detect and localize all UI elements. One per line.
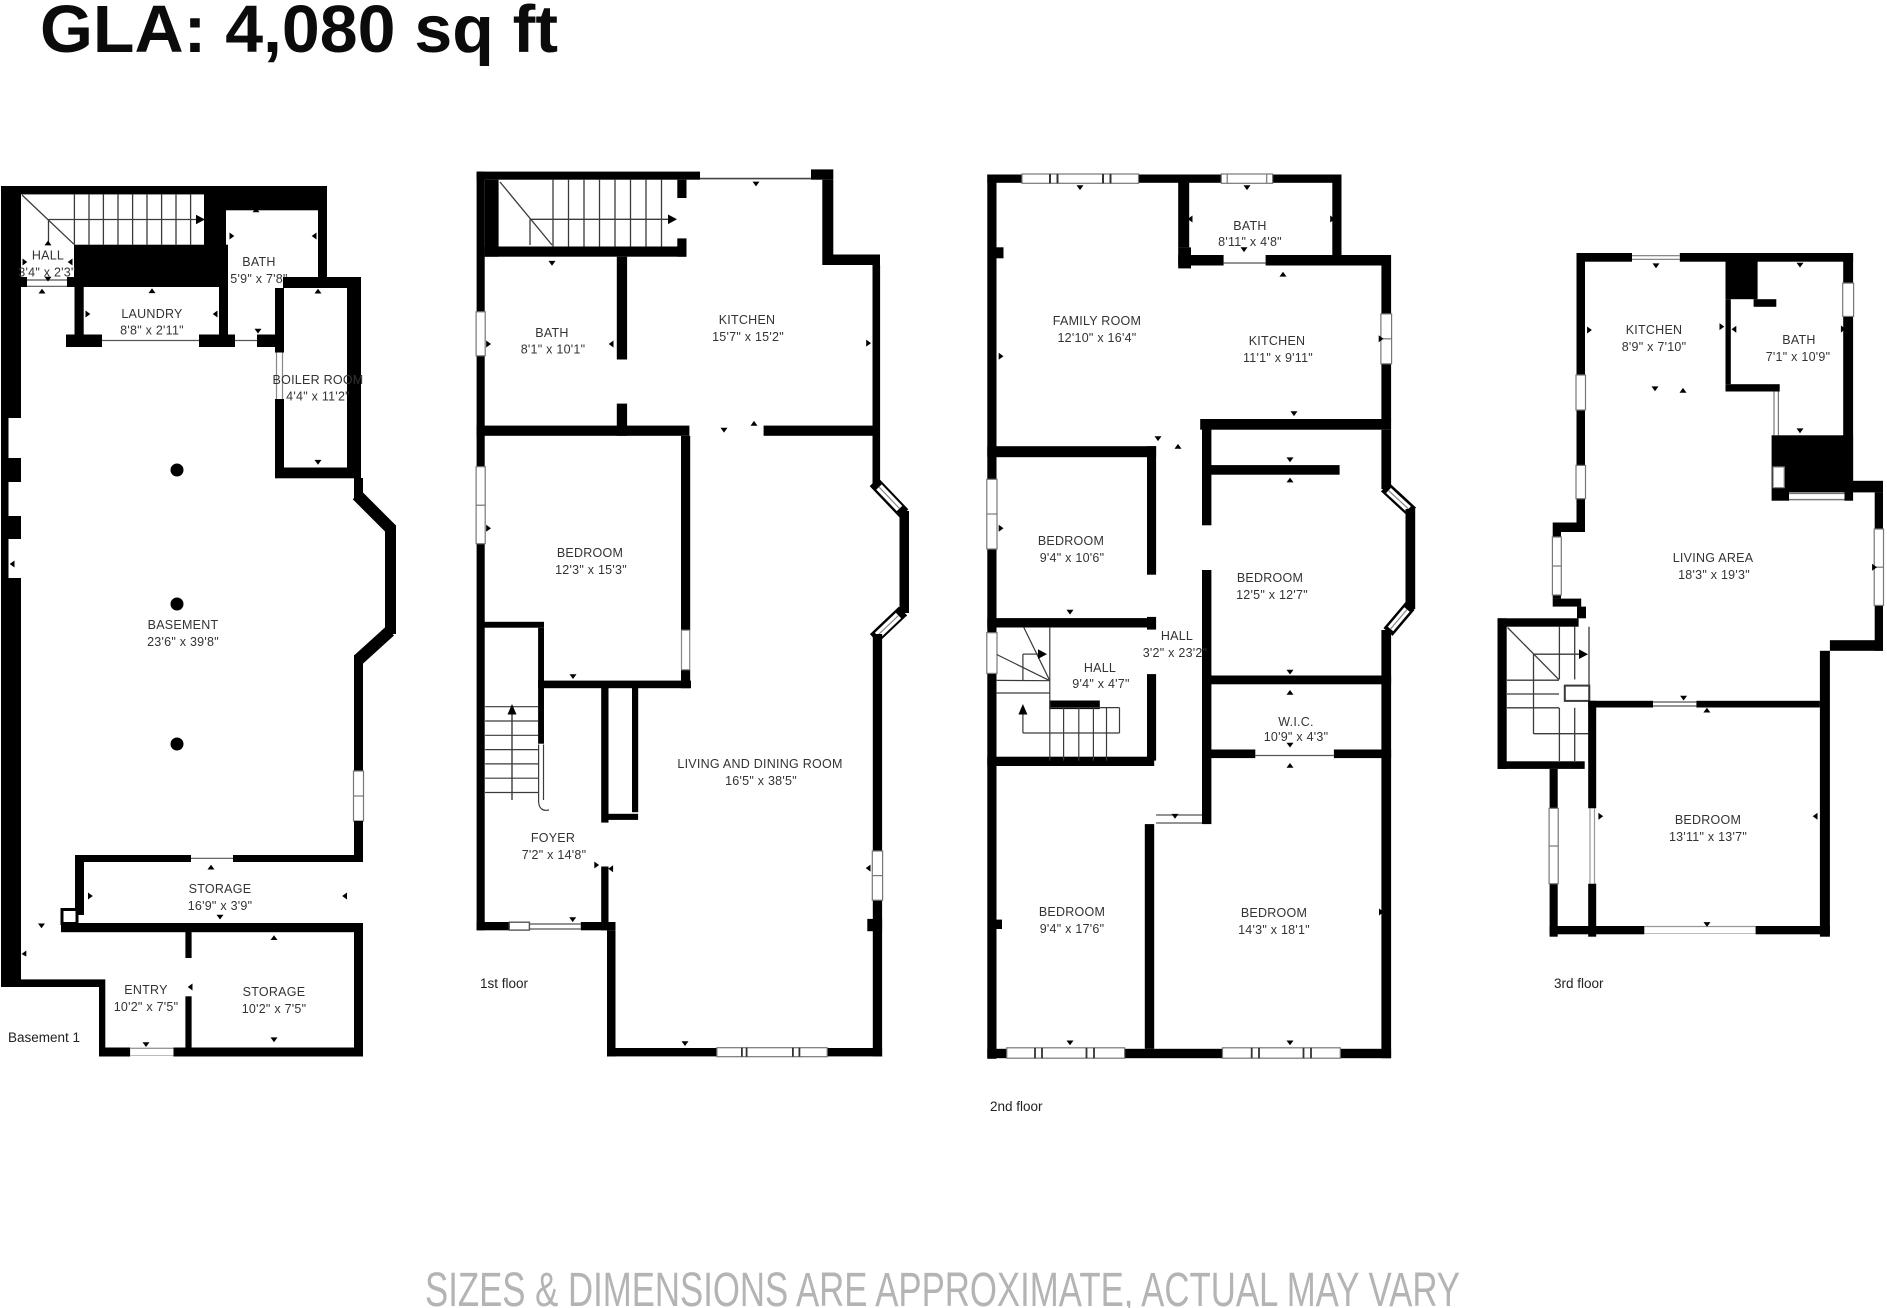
svg-text:3'2" x 23'2": 3'2" x 23'2"	[1143, 646, 1208, 660]
svg-text:BOILER ROOM: BOILER ROOM	[273, 373, 364, 387]
svg-text:BASEMENT: BASEMENT	[148, 618, 219, 632]
svg-text:HALL: HALL	[1161, 629, 1193, 643]
svg-text:BEDROOM: BEDROOM	[1237, 571, 1303, 585]
svg-text:13'11" x 13'7": 13'11" x 13'7"	[1669, 830, 1747, 844]
svg-text:8'11" x 4'8": 8'11" x 4'8"	[1218, 235, 1282, 249]
svg-text:BEDROOM: BEDROOM	[1241, 906, 1307, 920]
svg-text:3'4" x 2'3": 3'4" x 2'3"	[18, 266, 75, 280]
svg-text:FOYER: FOYER	[531, 831, 575, 845]
svg-text:15'7" x 15'2": 15'7" x 15'2"	[712, 330, 784, 344]
svg-text:2nd floor: 2nd floor	[990, 1099, 1043, 1114]
svg-text:23'6" x 39'8": 23'6" x 39'8"	[147, 635, 219, 649]
svg-text:BEDROOM: BEDROOM	[1675, 813, 1741, 827]
svg-text:BEDROOM: BEDROOM	[557, 546, 623, 560]
svg-text:ENTRY: ENTRY	[124, 983, 168, 997]
svg-text:8'1" x 10'1": 8'1" x 10'1"	[521, 343, 586, 357]
svg-text:FAMILY ROOM: FAMILY ROOM	[1053, 314, 1141, 328]
svg-text:BEDROOM: BEDROOM	[1039, 905, 1105, 919]
svg-text:7'2" x 14'8": 7'2" x 14'8"	[522, 848, 587, 862]
svg-text:4'4" x 11'2": 4'4" x 11'2"	[286, 390, 350, 404]
svg-text:11'1" x 9'11": 11'1" x 9'11"	[1243, 351, 1313, 365]
svg-text:GLA: 4,080 sq ft: GLA: 4,080 sq ft	[40, 0, 558, 67]
svg-text:HALL: HALL	[32, 249, 64, 263]
svg-text:LIVING AND DINING ROOM: LIVING AND DINING ROOM	[677, 757, 842, 771]
svg-text:LAUNDRY: LAUNDRY	[121, 307, 183, 321]
svg-text:9'4" x 17'6": 9'4" x 17'6"	[1040, 922, 1105, 936]
svg-text:BEDROOM: BEDROOM	[1038, 534, 1104, 548]
svg-text:BATH: BATH	[535, 326, 568, 340]
svg-text:5'9" x 7'8": 5'9" x 7'8"	[230, 272, 287, 286]
svg-text:1st floor: 1st floor	[480, 976, 529, 991]
svg-text:BATH: BATH	[1782, 333, 1815, 347]
svg-text:BATH: BATH	[242, 255, 275, 269]
svg-text:KITCHEN: KITCHEN	[1249, 334, 1306, 348]
svg-text:14'3" x 18'1": 14'3" x 18'1"	[1238, 923, 1310, 937]
svg-text:8'8" x 2'11": 8'8" x 2'11"	[120, 324, 184, 338]
svg-text:9'4" x 10'6": 9'4" x 10'6"	[1040, 551, 1105, 565]
svg-text:16'9" x 3'9": 16'9" x 3'9"	[188, 899, 253, 913]
svg-text:W.I.C.: W.I.C.	[1278, 715, 1314, 729]
svg-text:12'5" x 12'7": 12'5" x 12'7"	[1236, 588, 1308, 602]
svg-text:12'10" x 16'4": 12'10" x 16'4"	[1057, 331, 1136, 345]
svg-text:Basement 1: Basement 1	[8, 1030, 80, 1045]
svg-text:9'4" x 4'7": 9'4" x 4'7"	[1072, 677, 1129, 691]
svg-text:STORAGE: STORAGE	[243, 985, 306, 999]
svg-text:18'3" x 19'3": 18'3" x 19'3"	[1678, 568, 1750, 582]
svg-text:SIZES & DIMENSIONS ARE APPROXI: SIZES & DIMENSIONS ARE APPROXIMATE, ACTU…	[425, 1264, 1460, 1308]
svg-text:7'1" x 10'9": 7'1" x 10'9"	[1766, 350, 1831, 364]
svg-text:HALL: HALL	[1084, 661, 1116, 675]
svg-text:16'5" x 38'5": 16'5" x 38'5"	[725, 774, 797, 788]
svg-text:KITCHEN: KITCHEN	[1626, 323, 1683, 337]
svg-text:10'9" x 4'3": 10'9" x 4'3"	[1264, 730, 1329, 744]
svg-text:STORAGE: STORAGE	[189, 882, 252, 896]
svg-text:KITCHEN: KITCHEN	[719, 313, 776, 327]
svg-text:12'3" x 15'3": 12'3" x 15'3"	[555, 563, 627, 577]
svg-text:3rd floor: 3rd floor	[1554, 976, 1604, 991]
svg-text:BATH: BATH	[1233, 219, 1266, 233]
svg-text:10'2" x 7'5": 10'2" x 7'5"	[114, 1000, 179, 1014]
svg-text:8'9" x 7'10": 8'9" x 7'10"	[1622, 340, 1687, 354]
svg-text:10'2" x 7'5": 10'2" x 7'5"	[242, 1002, 307, 1016]
svg-text:LIVING AREA: LIVING AREA	[1673, 551, 1754, 565]
